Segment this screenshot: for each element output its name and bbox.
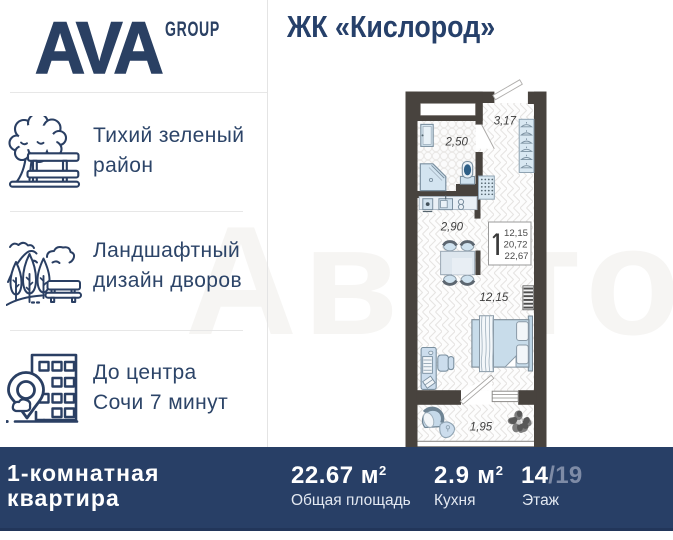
svg-text:2,90: 2,90 [440,222,464,234]
svg-text:3,17: 3,17 [494,116,517,128]
svg-text:2,50: 2,50 [445,136,469,148]
svg-text:20,72: 20,72 [504,240,528,251]
svg-text:12,15: 12,15 [504,228,528,239]
svg-text:22,67: 22,67 [505,251,529,262]
svg-text:12,15: 12,15 [480,292,509,304]
svg-text:1,95: 1,95 [470,421,493,433]
